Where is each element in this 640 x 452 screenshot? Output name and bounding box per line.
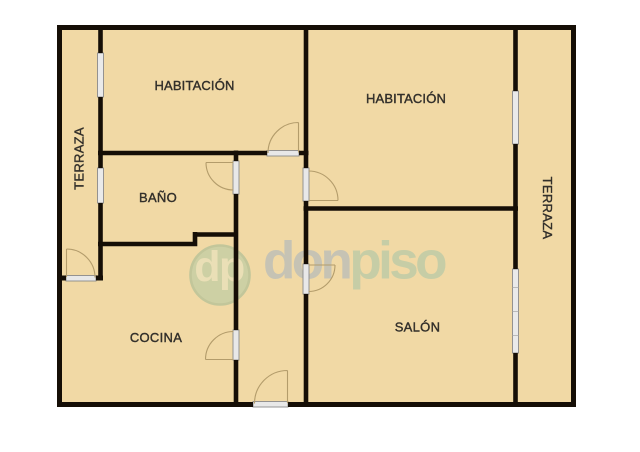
svg-text:HABITACIÓN: HABITACIÓN: [155, 78, 235, 93]
svg-text:TERRAZA: TERRAZA: [540, 177, 555, 240]
svg-text:TERRAZA: TERRAZA: [72, 127, 87, 190]
svg-text:SALÓN: SALÓN: [395, 320, 441, 335]
svg-text:COCINA: COCINA: [130, 330, 182, 345]
svg-text:BAÑO: BAÑO: [139, 190, 177, 205]
svg-text:HABITACIÓN: HABITACIÓN: [366, 91, 446, 106]
svg-text:donpiso: donpiso: [263, 232, 446, 291]
